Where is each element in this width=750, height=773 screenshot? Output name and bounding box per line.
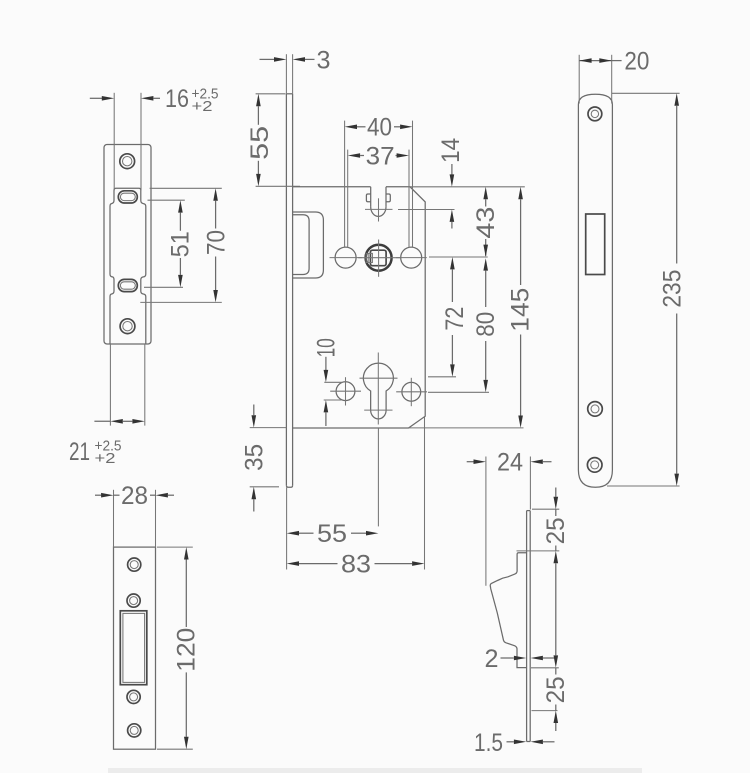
svg-text:51: 51 [167, 231, 195, 257]
svg-text:3: 3 [317, 46, 331, 74]
svg-text:2: 2 [485, 645, 499, 673]
svg-text:55: 55 [317, 520, 347, 548]
svg-text:120: 120 [173, 628, 201, 672]
svg-text:10: 10 [313, 338, 341, 357]
svg-text:43: 43 [472, 207, 500, 239]
svg-text:+2: +2 [95, 451, 116, 467]
svg-text:14: 14 [437, 138, 465, 163]
svg-text:24: 24 [497, 449, 523, 477]
svg-text:80: 80 [472, 312, 500, 337]
svg-text:25: 25 [542, 676, 570, 703]
svg-text:25: 25 [542, 517, 570, 544]
svg-text:+2: +2 [192, 99, 213, 115]
svg-text:37: 37 [366, 142, 395, 170]
svg-text:70: 70 [202, 230, 230, 255]
svg-text:28: 28 [121, 482, 148, 510]
svg-text:21: 21 [69, 438, 90, 466]
svg-text:55: 55 [246, 126, 274, 160]
svg-text:1.5: 1.5 [474, 729, 503, 757]
svg-text:72: 72 [441, 307, 469, 331]
svg-text:235: 235 [659, 270, 687, 308]
svg-text:145: 145 [507, 288, 535, 332]
svg-text:20: 20 [624, 48, 649, 76]
svg-text:35: 35 [241, 444, 269, 471]
svg-text:16: 16 [165, 85, 189, 113]
svg-text:40: 40 [367, 114, 392, 142]
svg-text:83: 83 [341, 551, 371, 579]
